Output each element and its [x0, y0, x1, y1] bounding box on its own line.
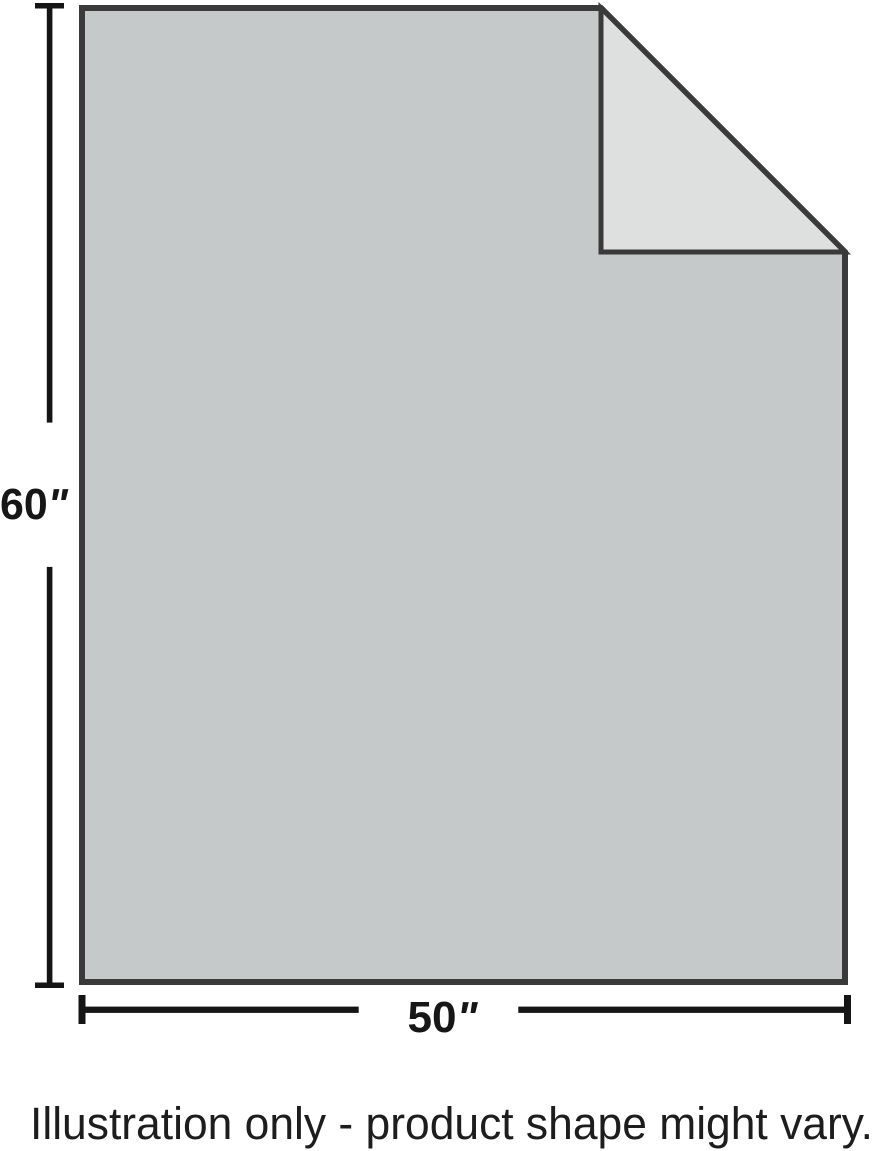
svg-text:Illustration only - product sh: Illustration only - product shape might …	[30, 1098, 872, 1149]
svg-text:50": 50"	[408, 994, 479, 1042]
svg-text:60": 60"	[0, 481, 69, 529]
